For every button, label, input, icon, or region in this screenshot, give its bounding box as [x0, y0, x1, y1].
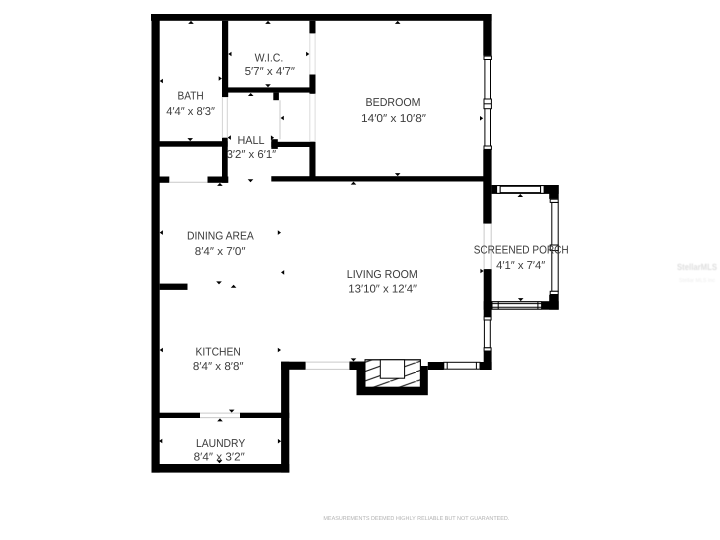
svg-text:DINING AREA: DINING AREA [187, 231, 254, 243]
svg-text:SCREENED PORCH: SCREENED PORCH [474, 245, 569, 257]
svg-text:W.I.C.: W.I.C. [255, 52, 284, 64]
svg-text:3′2″ x 6′1″: 3′2″ x 6′1″ [227, 149, 277, 161]
svg-text:4′4″ x 8′3″: 4′4″ x 8′3″ [166, 106, 215, 118]
svg-text:4′1″ x 7′4″: 4′1″ x 7′4″ [496, 260, 545, 272]
svg-text:HALL: HALL [237, 135, 264, 147]
svg-text:13′10″ x 12′4″: 13′10″ x 12′4″ [348, 283, 417, 295]
svg-text:KITCHEN: KITCHEN [196, 346, 241, 358]
svg-text:MEASUREMENTS DEEMED HIGHLY REL: MEASUREMENTS DEEMED HIGHLY RELIABLE BUT … [323, 516, 509, 522]
svg-text:BEDROOM: BEDROOM [366, 97, 421, 109]
svg-text:5′7″ x 4′7″: 5′7″ x 4′7″ [245, 66, 295, 78]
svg-text:14′0″ x 10′8″: 14′0″ x 10′8″ [361, 113, 426, 125]
svg-text:BATH: BATH [177, 91, 203, 103]
svg-text:LAUNDRY: LAUNDRY [196, 438, 246, 450]
svg-text:Stellar MLS Inc: Stellar MLS Inc [679, 278, 715, 284]
svg-text:8′4″ x 7′0″: 8′4″ x 7′0″ [195, 246, 246, 258]
svg-text:StellarMLS: StellarMLS [677, 262, 717, 272]
svg-text:8′4″ x 8′8″: 8′4″ x 8′8″ [193, 361, 244, 373]
svg-text:LIVING ROOM: LIVING ROOM [347, 269, 418, 281]
